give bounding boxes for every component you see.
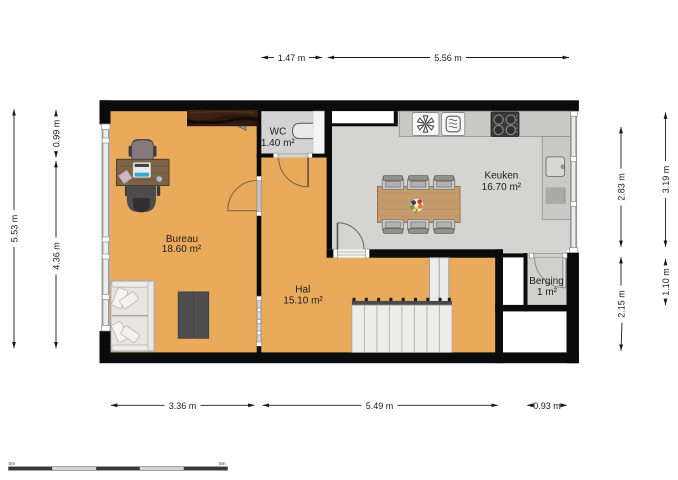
svg-text:15.10 m²: 15.10 m² — [283, 295, 323, 306]
svg-text:3.36 m: 3.36 m — [169, 401, 197, 411]
svg-text:5.53 m: 5.53 m — [10, 215, 20, 243]
svg-text:Berging: Berging — [529, 276, 563, 287]
svg-text:16.70 m²: 16.70 m² — [482, 182, 522, 193]
svg-text:1 m²: 1 m² — [537, 287, 558, 298]
svg-text:WC: WC — [270, 127, 287, 138]
svg-text:1.47 m: 1.47 m — [278, 53, 306, 63]
svg-text:2.15 m: 2.15 m — [617, 290, 627, 318]
svg-text:18.60 m²: 18.60 m² — [162, 244, 202, 255]
svg-text:Bureau: Bureau — [166, 234, 198, 245]
svg-text:2.83 m: 2.83 m — [617, 173, 627, 201]
svg-text:4.36 m: 4.36 m — [52, 242, 62, 270]
svg-text:0.99 m: 0.99 m — [52, 120, 62, 148]
svg-text:Keuken: Keuken — [484, 171, 518, 182]
svg-text:0m: 0m — [9, 461, 16, 467]
svg-text:1.10 m: 1.10 m — [661, 268, 671, 296]
svg-text:5.49 m: 5.49 m — [366, 401, 394, 411]
svg-text:1.40 m²: 1.40 m² — [261, 138, 296, 149]
svg-text:0.93 m: 0.93 m — [533, 401, 561, 411]
svg-text:3.19 m: 3.19 m — [661, 166, 671, 194]
svg-text:Hal: Hal — [295, 284, 310, 295]
svg-text:5m: 5m — [219, 461, 226, 467]
svg-text:5.56 m: 5.56 m — [434, 53, 462, 63]
